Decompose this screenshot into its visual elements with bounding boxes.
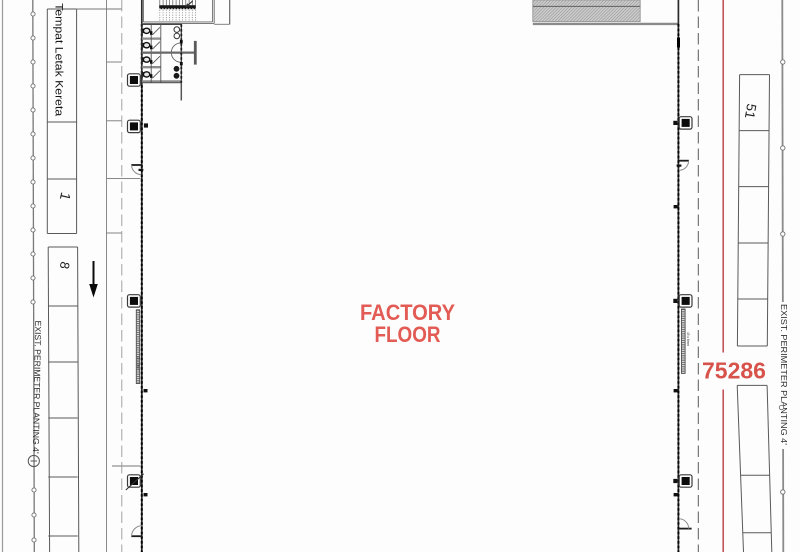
svg-text:51: 51 <box>742 102 759 119</box>
svg-text:EXIST. PERIMETER PLANTING 4': EXIST. PERIMETER PLANTING 4' <box>779 304 789 445</box>
svg-text:45 x 6mm: 45 x 6mm <box>686 332 690 346</box>
svg-text:Tempat Letak Kereta: Tempat Letak Kereta <box>53 3 65 117</box>
svg-text:45 x 6mm: 45 x 6mm <box>136 356 140 370</box>
svg-text:FLOOR: FLOOR <box>375 322 441 347</box>
svg-text:75286: 75286 <box>702 357 766 383</box>
